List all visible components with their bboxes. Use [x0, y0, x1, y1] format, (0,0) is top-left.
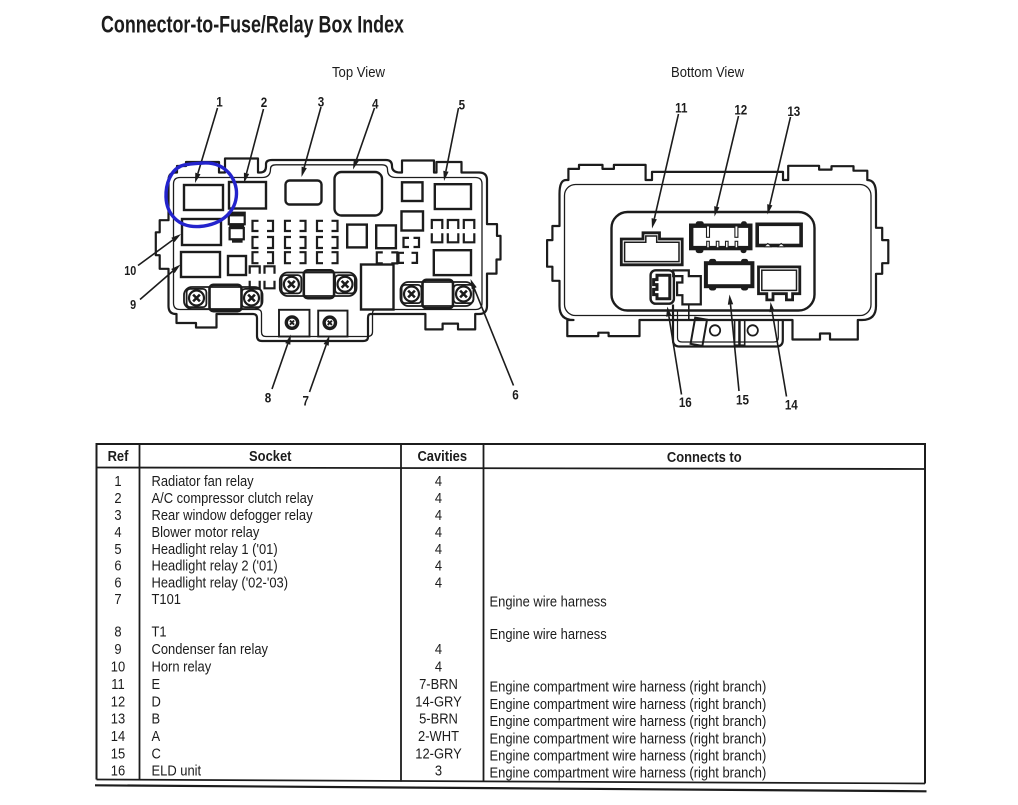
- svg-text:4: 4: [372, 96, 379, 112]
- svg-text:T1: T1: [152, 623, 167, 640]
- svg-text:Engine compartment wire harnes: Engine compartment wire harness (right b…: [490, 747, 767, 764]
- svg-text:15: 15: [111, 744, 126, 761]
- svg-text:5: 5: [459, 97, 465, 113]
- svg-text:A: A: [152, 727, 161, 744]
- svg-text:13: 13: [787, 103, 800, 119]
- svg-text:Engine compartment wire harnes: Engine compartment wire harness (right b…: [490, 730, 767, 747]
- svg-text:12-GRY: 12-GRY: [415, 744, 462, 761]
- svg-text:14-GRY: 14-GRY: [415, 693, 462, 710]
- svg-text:3: 3: [114, 506, 121, 523]
- svg-text:Condenser fan relay: Condenser fan relay: [152, 640, 269, 657]
- svg-text:ELD unit: ELD unit: [152, 762, 202, 779]
- svg-text:Cavities: Cavities: [417, 447, 467, 464]
- svg-text:7: 7: [302, 392, 308, 408]
- svg-text:16: 16: [111, 762, 126, 779]
- svg-text:10: 10: [111, 658, 126, 675]
- svg-text:4: 4: [435, 658, 442, 675]
- svg-text:Rear window defogger relay: Rear window defogger relay: [152, 506, 313, 523]
- svg-text:3: 3: [318, 93, 324, 109]
- svg-text:6: 6: [114, 574, 121, 591]
- svg-text:1: 1: [216, 93, 222, 109]
- svg-text:11: 11: [111, 675, 125, 692]
- svg-text:4: 4: [435, 540, 442, 557]
- svg-text:Socket: Socket: [249, 447, 292, 464]
- svg-text:10: 10: [124, 263, 136, 278]
- svg-text:4: 4: [435, 489, 442, 506]
- svg-text:5-BRN: 5-BRN: [419, 710, 458, 727]
- svg-text:Connector-to-Fuse/Relay Box In: Connector-to-Fuse/Relay Box Index: [101, 11, 404, 38]
- svg-text:Bottom View: Bottom View: [671, 65, 744, 81]
- svg-text:4: 4: [114, 523, 121, 540]
- svg-text:12: 12: [734, 101, 747, 117]
- svg-text:Headlight relay 2 ('01): Headlight relay 2 ('01): [152, 557, 278, 574]
- svg-text:E: E: [152, 675, 161, 692]
- svg-text:B: B: [152, 710, 161, 727]
- svg-text:16: 16: [679, 394, 692, 410]
- svg-text:Engine compartment wire harnes: Engine compartment wire harness (right b…: [490, 678, 767, 695]
- svg-text:T101: T101: [152, 590, 182, 607]
- svg-text:2: 2: [114, 489, 121, 506]
- svg-text:A/C compressor clutch relay: A/C compressor clutch relay: [152, 489, 314, 506]
- svg-text:Connects to: Connects to: [667, 448, 742, 465]
- svg-text:8: 8: [265, 390, 271, 406]
- svg-text:7: 7: [114, 590, 121, 607]
- svg-text:9: 9: [130, 297, 136, 312]
- svg-text:3: 3: [435, 762, 442, 779]
- svg-text:4: 4: [435, 574, 442, 591]
- svg-text:1: 1: [114, 472, 121, 489]
- svg-text:4: 4: [435, 472, 442, 489]
- svg-text:4: 4: [435, 557, 442, 574]
- svg-text:D: D: [152, 693, 161, 710]
- svg-text:Headlight relay 1 ('01): Headlight relay 1 ('01): [152, 540, 278, 557]
- svg-text:11: 11: [675, 99, 687, 115]
- svg-text:Ref: Ref: [108, 447, 129, 464]
- svg-text:4: 4: [435, 523, 442, 540]
- svg-text:2-WHT: 2-WHT: [418, 727, 459, 744]
- svg-text:14: 14: [785, 396, 799, 412]
- svg-text:Blower motor relay: Blower motor relay: [152, 523, 260, 540]
- svg-text:Engine compartment wire harnes: Engine compartment wire harness (right b…: [490, 764, 767, 781]
- svg-text:Engine wire harness: Engine wire harness: [490, 593, 607, 610]
- svg-text:6: 6: [114, 557, 121, 574]
- svg-text:Radiator fan relay: Radiator fan relay: [152, 472, 254, 489]
- svg-text:13: 13: [111, 710, 126, 727]
- svg-text:4: 4: [435, 640, 442, 657]
- svg-text:2: 2: [261, 94, 267, 110]
- svg-text:9: 9: [114, 640, 121, 657]
- svg-text:8: 8: [114, 623, 121, 640]
- svg-text:Headlight relay ('02-'03): Headlight relay ('02-'03): [152, 574, 289, 591]
- svg-text:Engine wire harness: Engine wire harness: [490, 625, 607, 642]
- svg-text:Engine compartment wire harnes: Engine compartment wire harness (right b…: [490, 695, 767, 712]
- svg-text:14: 14: [111, 727, 126, 744]
- svg-text:Top View: Top View: [332, 65, 385, 81]
- svg-text:C: C: [152, 744, 161, 761]
- svg-text:15: 15: [736, 391, 749, 407]
- svg-text:12: 12: [111, 693, 126, 710]
- svg-text:Engine compartment wire harnes: Engine compartment wire harness (right b…: [490, 712, 767, 729]
- svg-text:5: 5: [114, 540, 121, 557]
- svg-text:6: 6: [512, 387, 518, 403]
- svg-text:7-BRN: 7-BRN: [419, 675, 458, 692]
- svg-text:Horn relay: Horn relay: [152, 658, 212, 675]
- svg-text:4: 4: [435, 506, 442, 523]
